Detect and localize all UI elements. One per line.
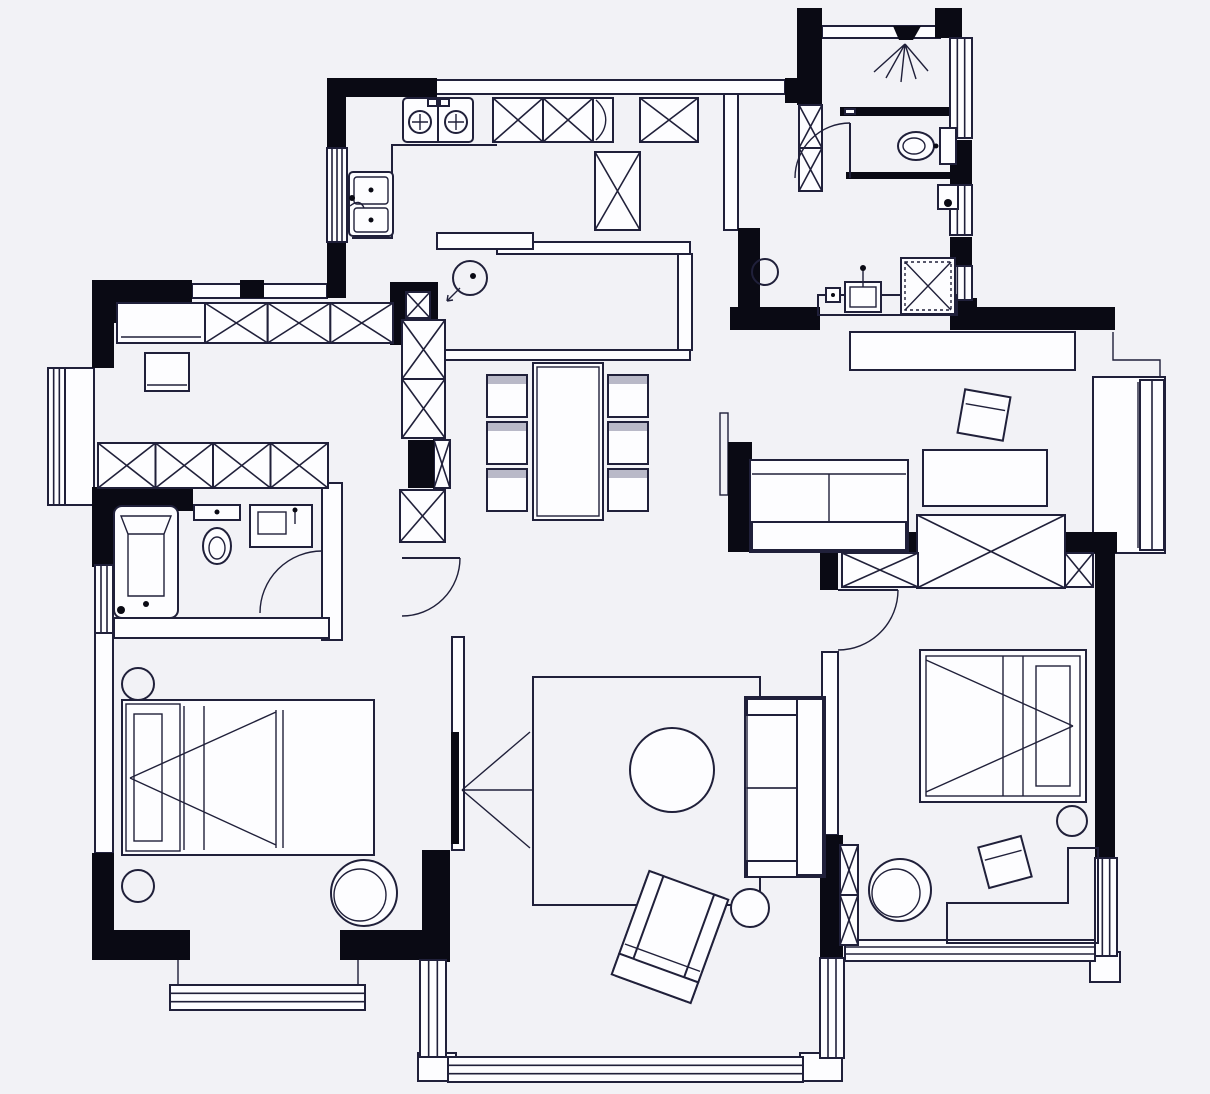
chair-icon — [487, 422, 527, 464]
tall-cabinet-icon — [402, 320, 445, 438]
shoe-cabinet-icon — [595, 152, 640, 230]
hall-cabinet-icon — [400, 490, 445, 542]
vanity-sink-icon — [250, 505, 312, 547]
closet-column-icon — [1065, 553, 1093, 587]
stool-icon — [145, 353, 189, 391]
wall-segment — [327, 78, 346, 150]
tv-wall-unit — [451, 732, 459, 844]
wall-segment — [435, 80, 785, 94]
double-bed-icon — [122, 700, 374, 855]
bedroom-right-wardrobe-icon — [842, 553, 918, 587]
chair-icon — [608, 375, 648, 417]
wall-segment — [92, 487, 114, 567]
double-bed-icon — [920, 650, 1086, 802]
narrow-cabinet-icon — [434, 440, 450, 488]
wall-segment — [340, 930, 435, 960]
corner-basin-icon — [938, 185, 958, 209]
wall-segment — [92, 930, 190, 960]
wall-segment — [797, 8, 822, 105]
stove-two-burners-icon — [403, 98, 473, 142]
wall-segment — [738, 228, 760, 310]
dining-table-icon — [533, 363, 603, 520]
shaft-column-icon — [799, 105, 822, 191]
wall-segment — [327, 240, 346, 298]
dressing-room — [145, 353, 189, 391]
wall-segment — [822, 26, 940, 38]
round-coffee-table-icon — [630, 728, 714, 812]
small-cabinet-icon — [406, 292, 430, 318]
entry-wall-cabinet-icon — [493, 98, 593, 142]
double-sink-icon — [349, 172, 393, 236]
partition-handle — [845, 109, 855, 114]
kitchen-peninsula-counter — [437, 233, 533, 249]
living-window-left — [420, 960, 446, 1057]
living-window-right — [820, 958, 844, 1058]
dressing-plain-cabinet-icon — [117, 303, 205, 343]
bathroom-left-window — [95, 565, 113, 633]
wall-segment — [850, 332, 1075, 370]
kitchen-window — [327, 148, 347, 242]
tv-tilted-icon — [958, 389, 1011, 440]
wall-segment — [730, 307, 820, 330]
bathroom-top-window-a — [950, 38, 972, 138]
wall-segment — [724, 94, 738, 230]
entry-curved-cabinet-icon — [593, 98, 613, 142]
wall-segment — [322, 483, 342, 640]
bedroom-left-bay-window — [170, 985, 365, 1010]
wall-segment — [935, 8, 962, 38]
wall-segment — [846, 172, 957, 179]
chair-icon — [487, 469, 527, 511]
wall-segment — [977, 307, 1115, 330]
chair-icon — [487, 375, 527, 417]
wall-segment — [422, 850, 450, 962]
wall-segment — [437, 350, 690, 360]
chair-icon — [608, 422, 648, 464]
wall-segment — [1095, 533, 1115, 860]
wardrobe-strip-icon — [840, 845, 858, 945]
living-bay-glazing — [1140, 380, 1164, 550]
chair-icon — [608, 469, 648, 511]
round-chair-icon — [869, 859, 931, 921]
wall-segment — [114, 618, 329, 638]
living-window-bottom — [448, 1057, 803, 1082]
dressing-bay-glazing — [48, 368, 65, 505]
dressing-wardrobe-row-icon — [98, 443, 328, 488]
round-ottoman-icon — [331, 860, 397, 926]
wall-segment — [408, 440, 434, 488]
entry-wall-cabinet-icon — [640, 98, 698, 142]
wall-segment — [678, 254, 692, 350]
dressing-wardrobe-row-icon — [205, 303, 393, 343]
tv-cabinet-icon — [923, 450, 1047, 506]
dining-chairs-right — [608, 375, 648, 511]
wall-segment — [240, 280, 264, 298]
dining-chairs-left — [487, 375, 527, 511]
floor-plan-canvas — [0, 0, 1210, 1094]
side-round-table-icon — [731, 889, 769, 927]
washing-machine-icon — [901, 258, 955, 314]
bathtub-icon — [114, 506, 178, 618]
bedroom-right-wardrobe-icon — [917, 515, 1065, 588]
wall-segment — [95, 633, 113, 853]
wall-segment — [92, 323, 114, 368]
sofa-icon — [745, 697, 825, 877]
floor-plan-page — [0, 0, 1210, 1094]
shower-glass-partition — [840, 107, 957, 116]
